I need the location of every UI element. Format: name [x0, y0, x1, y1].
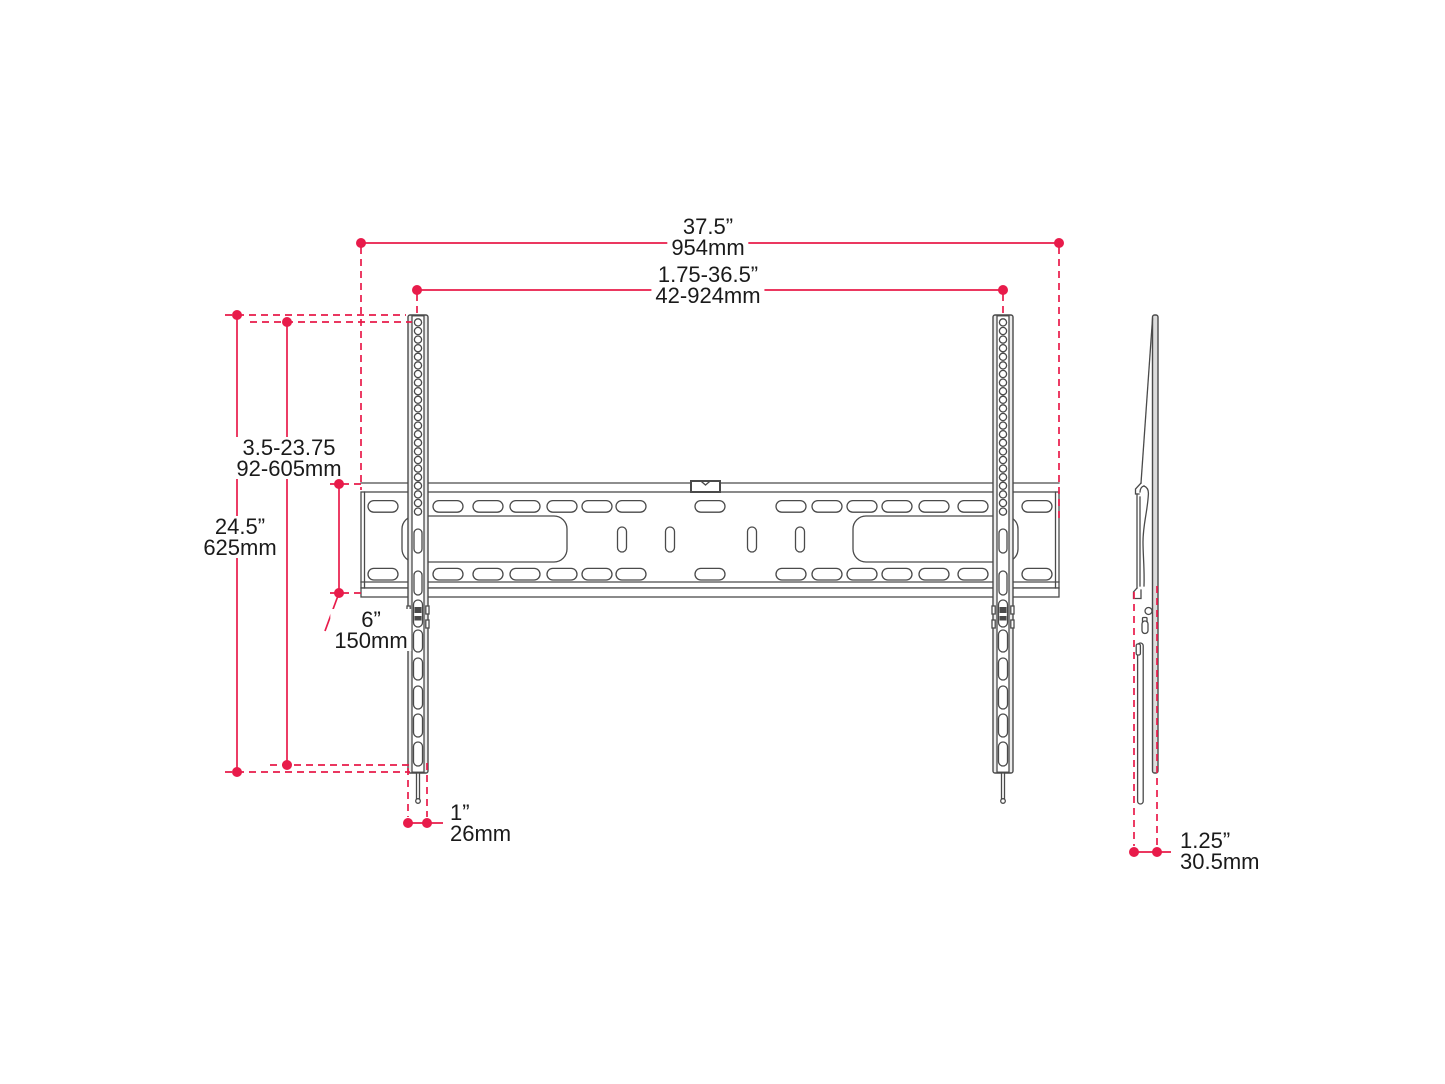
dim-total-width-mm: 954mm — [671, 237, 744, 258]
diagram-canvas: 37.5” 954mm 1.75-36.5” 42-924mm 3.5-23.7… — [0, 0, 1445, 1084]
dim-depth-mm: 30.5mm — [1180, 851, 1259, 872]
dim-label-pin-offset: 1” 26mm — [446, 802, 515, 844]
wall-plate — [361, 481, 1059, 597]
dim-width-range-mm: 42-924mm — [655, 285, 760, 306]
dim-label-depth: 1.25” 30.5mm — [1176, 830, 1263, 872]
dim-plate-height-in: 6” — [334, 609, 407, 630]
dim-label-width-range: 1.75-36.5” 42-924mm — [651, 264, 764, 306]
center-tab — [691, 481, 720, 492]
dim-height-range-mm: 92-605mm — [236, 458, 341, 479]
dim-width-range-in: 1.75-36.5” — [655, 264, 760, 285]
dim-total-height-mm: 625mm — [203, 537, 276, 558]
dim-label-total-width: 37.5” 954mm — [667, 216, 748, 258]
dim-label-plate-height: 6” 150mm — [330, 609, 411, 651]
dim-label-height-range: 3.5-23.75 92-605mm — [232, 437, 345, 479]
dim-pin-offset-in: 1” — [450, 802, 511, 823]
front-view — [361, 315, 1059, 803]
dim-depth-in: 1.25” — [1180, 830, 1259, 851]
dim-plate-height-mm: 150mm — [334, 630, 407, 651]
dim-total-height-in: 24.5” — [203, 516, 276, 537]
dim-pin-offset-mm: 26mm — [450, 823, 511, 844]
dim-height-range-in: 3.5-23.75 — [236, 437, 341, 458]
side-arm — [1138, 643, 1144, 804]
dim-total-width-in: 37.5” — [671, 216, 744, 237]
side-view — [1134, 315, 1159, 804]
dim-label-total-height: 24.5” 625mm — [199, 516, 280, 558]
